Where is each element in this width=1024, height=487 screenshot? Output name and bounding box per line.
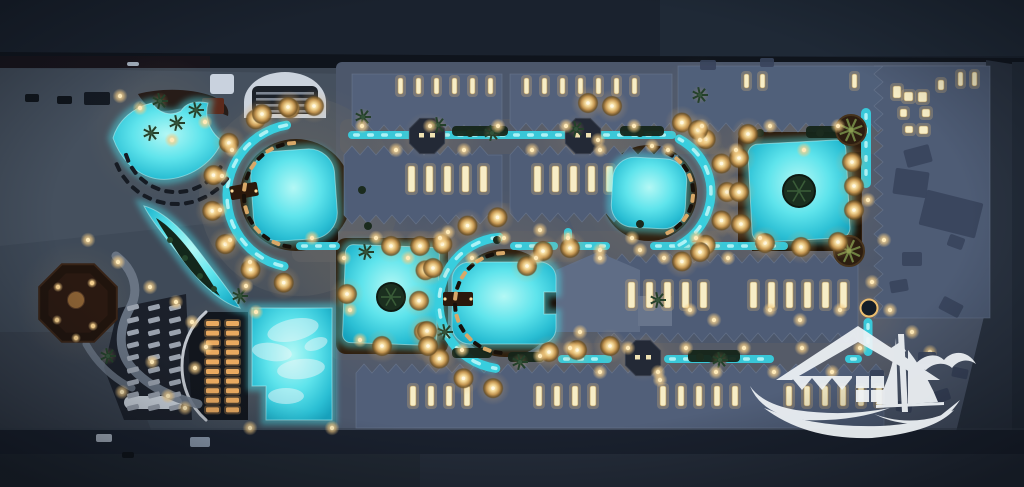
aerial-resort-night-photo: Aerial night view of a resort pool compl… — [0, 0, 1024, 487]
scene-canvas — [0, 0, 1024, 487]
logo-shape — [792, 376, 852, 390]
